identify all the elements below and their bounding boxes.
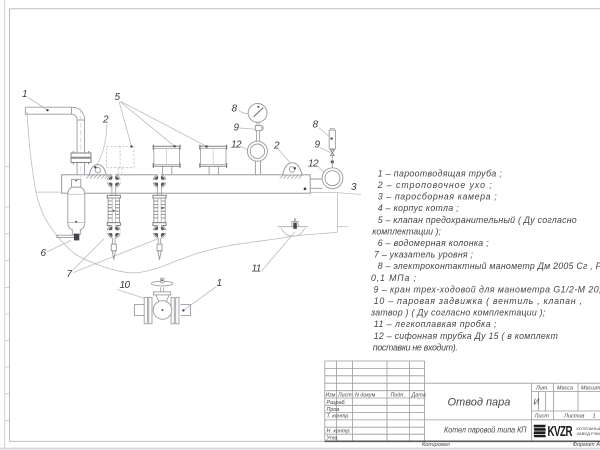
svg-text:1: 1 <box>217 278 223 289</box>
svg-text:9 – кран трех-ходовой для мано: 9 – кран трех-ходовой для манометра G1/2… <box>374 284 600 294</box>
svg-text:Лист: Лист <box>534 414 550 420</box>
svg-text:Разраб.: Разраб. <box>327 400 347 406</box>
svg-text:Листов: Листов <box>563 414 584 420</box>
svg-text:комплектации );: комплектации ); <box>372 226 441 236</box>
svg-text:11: 11 <box>252 264 261 275</box>
svg-text:12 – сифонная трубка Ду 15 ( в: 12 – сифонная трубка Ду 15 ( в комплект <box>374 331 558 341</box>
svg-text:2: 2 <box>273 141 280 152</box>
svg-text:Дата: Дата <box>411 392 426 398</box>
svg-text:поставки не входит).: поставки не входит). <box>373 342 458 352</box>
svg-text:5 – клапан предохранительный (: 5 – клапан предохранительный ( Ду соглас… <box>378 215 577 225</box>
svg-text:3 – паросборная камера ;: 3 – паросборная камера ; <box>378 192 498 202</box>
svg-text:7 – указатель уровня ;: 7 – указатель уровня ; <box>374 250 474 260</box>
svg-text:9: 9 <box>315 140 321 151</box>
svg-text:10: 10 <box>120 280 131 291</box>
svg-text:9: 9 <box>234 123 240 134</box>
svg-text:12: 12 <box>231 140 242 151</box>
svg-text:12: 12 <box>308 159 319 170</box>
svg-text:3: 3 <box>351 182 357 193</box>
svg-text:6 – водомерная колонка ;: 6 – водомерная колонка ; <box>378 238 490 248</box>
svg-text:4 – корпус котла ;: 4 – корпус котла ; <box>378 203 460 213</box>
svg-text:Т. контр.: Т. контр. <box>327 414 350 420</box>
svg-text:И: И <box>534 398 540 407</box>
svg-text:затвор ) ( Ду согласно комплек: затвор ) ( Ду согласно комплектации ); <box>370 308 546 318</box>
svg-text:8 – электроконтактный манометр: 8 – электроконтактный манометр Дм 2005 С… <box>378 261 600 271</box>
svg-text:Лит.: Лит. <box>535 386 549 392</box>
svg-text:7: 7 <box>67 269 73 280</box>
svg-text:2 – строповочное ухо ;: 2 – строповочное ухо ; <box>377 180 493 190</box>
svg-text:Копировал: Копировал <box>422 442 451 448</box>
svg-text:Формат А3: Формат А3 <box>573 442 600 448</box>
svg-text:6: 6 <box>41 248 47 259</box>
svg-text:8: 8 <box>232 104 238 115</box>
svg-text:Утв.: Утв. <box>326 436 339 442</box>
svg-text:N докум: N докум <box>355 392 376 398</box>
svg-text:Лист: Лист <box>337 392 352 398</box>
svg-text:Масштаб: Масштаб <box>581 386 600 392</box>
svg-text:0,1 МПа ;: 0,1 МПа ; <box>371 273 417 283</box>
svg-text:1: 1 <box>593 414 596 420</box>
svg-text:1 – пароотводящая труба ;: 1 – пароотводящая труба ; <box>378 168 503 178</box>
svg-text:KVZR: KVZR <box>548 423 573 440</box>
svg-text:Отвод пара: Отвод пара <box>448 397 511 409</box>
svg-text:Котел паровой типа КП: Котел паровой типа КП <box>444 426 527 435</box>
svg-text:10 – паровая задвижка ( вентил: 10 – паровая задвижка ( вентиль , клапан… <box>374 296 582 306</box>
svg-text:Подп.: Подп. <box>391 392 405 398</box>
svg-text:Н. контр.: Н. контр. <box>327 428 351 434</box>
svg-text:Изм: Изм <box>326 392 336 398</box>
svg-text:1: 1 <box>22 89 28 100</box>
svg-text:8: 8 <box>313 120 319 131</box>
svg-text:Пров.: Пров. <box>327 407 341 413</box>
svg-text:2: 2 <box>102 115 109 126</box>
svg-text:5: 5 <box>115 92 121 103</box>
svg-text:Масса: Масса <box>557 386 573 392</box>
svg-text:ЗАВОД РЭМЗ: ЗАВОД РЭМЗ <box>577 431 600 436</box>
svg-text:11 – легкоплавкая пробка ;: 11 – легкоплавкая пробка ; <box>374 319 497 329</box>
